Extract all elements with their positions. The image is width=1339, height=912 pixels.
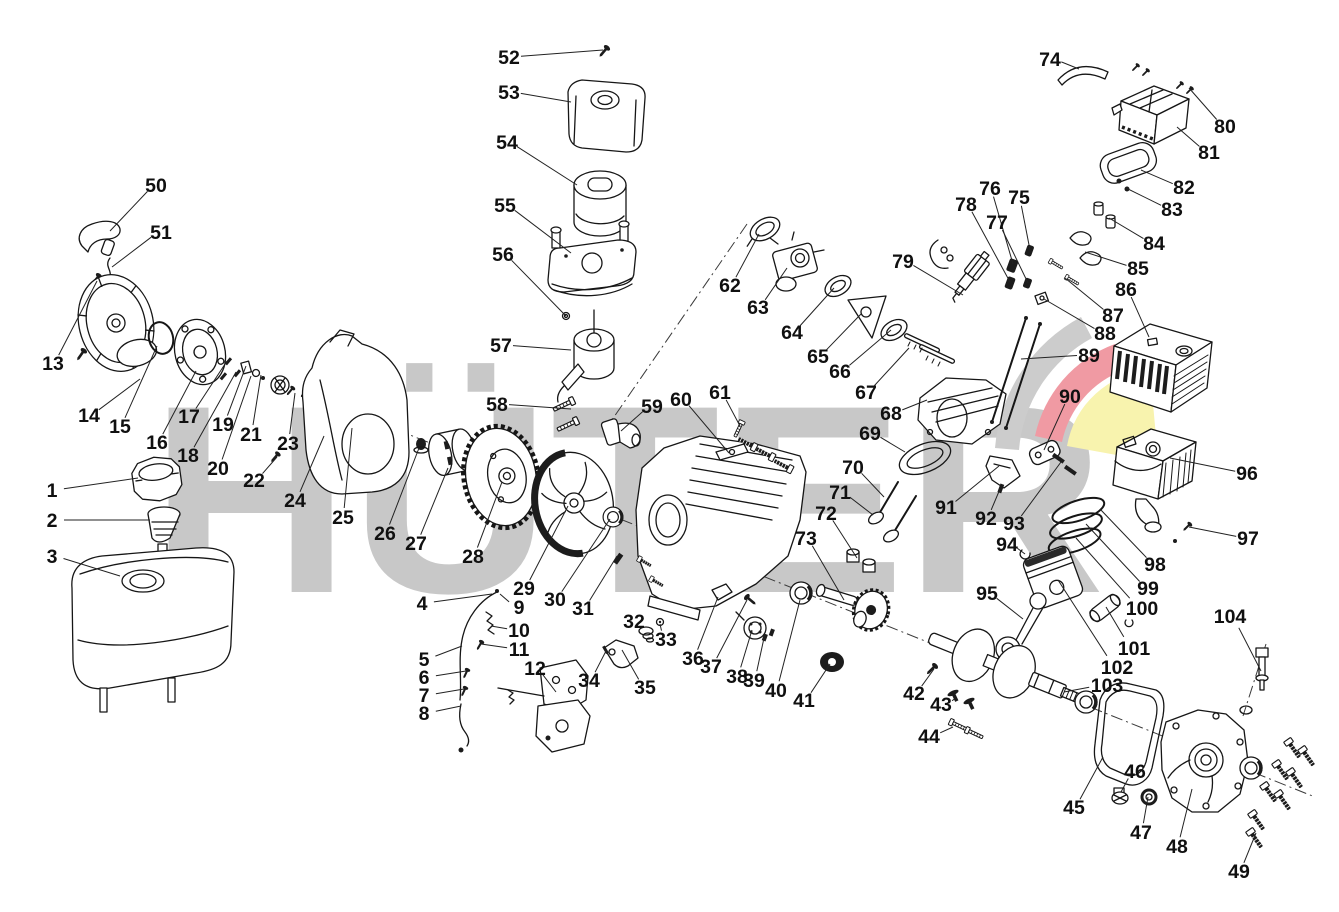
part-label-77: 77 xyxy=(986,212,1008,234)
leader-line-45 xyxy=(1080,757,1103,799)
bearing xyxy=(603,507,623,527)
part-label-9: 9 xyxy=(514,597,525,619)
part-label-98: 98 xyxy=(1144,554,1166,576)
part-label-26: 26 xyxy=(374,523,396,545)
leader-line-6 xyxy=(436,671,466,676)
part-label-3: 3 xyxy=(47,546,58,568)
pin-circlip xyxy=(1125,620,1133,627)
manifold-gasket xyxy=(877,315,910,345)
part-label-34: 34 xyxy=(578,670,600,692)
part-label-28: 28 xyxy=(462,546,484,568)
part-label-54: 54 xyxy=(496,132,518,154)
part-label-90: 90 xyxy=(1059,386,1081,408)
part-label-47: 47 xyxy=(1130,822,1152,844)
part-label-64: 64 xyxy=(781,322,803,344)
rocker-adjuster xyxy=(1035,292,1048,304)
part-label-97: 97 xyxy=(1237,528,1259,550)
leader-line-83 xyxy=(1126,188,1161,205)
part-label-45: 45 xyxy=(1063,797,1085,819)
part-label-76: 76 xyxy=(979,178,1001,200)
leader-line-62 xyxy=(736,234,759,277)
part-label-44: 44 xyxy=(918,726,940,748)
air-filter-element xyxy=(574,171,626,236)
leader-line-80 xyxy=(1189,88,1217,120)
leader-line-1 xyxy=(64,478,138,489)
valve-guides xyxy=(1094,202,1115,228)
part-label-2: 2 xyxy=(47,510,58,532)
part-label-96: 96 xyxy=(1236,463,1258,485)
leader-line-52 xyxy=(521,50,603,56)
part-label-23: 23 xyxy=(277,433,299,455)
leader-line-64 xyxy=(800,288,834,326)
part-label-49: 49 xyxy=(1228,861,1250,883)
part-label-84: 84 xyxy=(1143,233,1165,255)
part-label-12: 12 xyxy=(524,658,546,680)
part-label-80: 80 xyxy=(1214,116,1236,138)
part-label-57: 57 xyxy=(490,335,512,357)
flywheel-nut xyxy=(416,438,426,450)
part-label-14: 14 xyxy=(78,405,100,427)
leader-line-65 xyxy=(827,314,861,350)
oil-seal xyxy=(1142,790,1156,804)
part-label-20: 20 xyxy=(207,458,229,480)
leader-line-53 xyxy=(521,93,571,102)
rocker-cover xyxy=(1112,86,1189,144)
part-label-16: 16 xyxy=(146,432,168,454)
part-label-41: 41 xyxy=(793,690,815,712)
part-label-48: 48 xyxy=(1166,836,1188,858)
cover-gasket xyxy=(1097,139,1160,186)
leader-line-101 xyxy=(1106,607,1124,637)
part-label-100: 100 xyxy=(1126,598,1159,620)
exploded-view-canvas: HÜTER xyxy=(0,0,1339,912)
part-label-13: 13 xyxy=(42,353,64,375)
part-label-21: 21 xyxy=(240,424,262,446)
leader-line-8 xyxy=(436,706,461,711)
part-label-4: 4 xyxy=(417,593,428,615)
part-label-31: 31 xyxy=(572,598,594,620)
part-label-85: 85 xyxy=(1127,258,1149,280)
part-label-82: 82 xyxy=(1173,177,1195,199)
part-label-39: 39 xyxy=(743,670,765,692)
friction-plate xyxy=(271,376,289,394)
part-label-67: 67 xyxy=(855,382,877,404)
part-label-46: 46 xyxy=(1124,761,1146,783)
part-label-35: 35 xyxy=(634,677,656,699)
part-label-65: 65 xyxy=(807,346,829,368)
part-label-52: 52 xyxy=(498,47,520,69)
part-label-43: 43 xyxy=(930,694,952,716)
air-filter-cover xyxy=(568,80,645,152)
part-label-70: 70 xyxy=(842,457,864,479)
part-label-74: 74 xyxy=(1039,49,1061,71)
leader-line-55 xyxy=(515,210,571,253)
part-label-94: 94 xyxy=(996,534,1018,556)
leader-line-14 xyxy=(99,379,140,410)
part-label-63: 63 xyxy=(747,297,769,319)
part-label-24: 24 xyxy=(284,490,306,512)
part-label-56: 56 xyxy=(492,244,514,266)
part-label-72: 72 xyxy=(815,503,837,525)
part-label-1: 1 xyxy=(47,480,58,502)
part-label-19: 19 xyxy=(212,414,234,436)
air-cleaner-housing xyxy=(1113,429,1196,543)
choke-rod xyxy=(460,704,469,746)
leader-line-82 xyxy=(1141,170,1173,184)
leader-line-51 xyxy=(112,237,151,267)
part-label-78: 78 xyxy=(955,194,977,216)
part-label-55: 55 xyxy=(494,195,516,217)
leader-line-87 xyxy=(1065,278,1104,310)
oil-slinger xyxy=(820,652,844,672)
rocker-cover-cluster xyxy=(930,62,1195,304)
leader-line-50 xyxy=(110,191,148,231)
leader-line-44 xyxy=(940,727,953,733)
part-label-92: 92 xyxy=(975,508,997,530)
part-label-69: 69 xyxy=(859,423,881,445)
leader-line-81 xyxy=(1177,127,1200,147)
starter-grip xyxy=(79,221,120,252)
part-label-103: 103 xyxy=(1091,675,1124,697)
part-label-104: 104 xyxy=(1214,606,1247,628)
carburetor xyxy=(770,232,824,291)
part-label-17: 17 xyxy=(178,406,200,428)
parts-diagram-page: HÜTER xyxy=(0,0,1339,912)
part-label-86: 86 xyxy=(1115,279,1137,301)
leader-line-97 xyxy=(1189,527,1236,536)
insulator-plate xyxy=(848,296,886,338)
part-label-37: 37 xyxy=(700,656,722,678)
part-label-8: 8 xyxy=(419,703,430,725)
part-label-71: 71 xyxy=(829,482,851,504)
part-label-88: 88 xyxy=(1094,323,1116,345)
part-label-25: 25 xyxy=(332,507,354,529)
part-label-33: 33 xyxy=(655,629,677,651)
breather-tube xyxy=(1058,67,1108,85)
leader-line-49 xyxy=(1244,833,1256,863)
part-label-73: 73 xyxy=(795,528,817,550)
part-label-58: 58 xyxy=(486,394,508,416)
part-label-93: 93 xyxy=(1003,513,1025,535)
part-label-62: 62 xyxy=(719,275,741,297)
leader-line-74 xyxy=(1061,62,1079,69)
part-label-95: 95 xyxy=(976,583,998,605)
part-label-29: 29 xyxy=(513,578,535,600)
part-label-15: 15 xyxy=(109,416,131,438)
part-label-99: 99 xyxy=(1137,578,1159,600)
part-label-81: 81 xyxy=(1198,142,1220,164)
oil-drain-plug xyxy=(1112,788,1128,804)
leader-line-41 xyxy=(811,664,830,693)
leader-line-54 xyxy=(517,147,577,185)
part-label-89: 89 xyxy=(1078,345,1100,367)
part-label-83: 83 xyxy=(1161,199,1183,221)
fuel-tank xyxy=(72,548,234,712)
part-label-30: 30 xyxy=(544,589,566,611)
part-label-59: 59 xyxy=(641,396,663,418)
part-label-61: 61 xyxy=(709,382,731,404)
crankcase-cover xyxy=(1161,710,1248,812)
leader-line-79 xyxy=(913,265,963,295)
part-label-60: 60 xyxy=(670,389,692,411)
part-label-51: 51 xyxy=(150,222,172,244)
part-label-68: 68 xyxy=(880,403,902,425)
leader-line-75 xyxy=(1021,206,1030,250)
part-label-32: 32 xyxy=(623,611,645,633)
part-label-91: 91 xyxy=(935,497,957,519)
part-label-75: 75 xyxy=(1008,187,1030,209)
part-label-40: 40 xyxy=(765,680,787,702)
plug-terminal-wire xyxy=(930,240,948,268)
part-label-50: 50 xyxy=(145,175,167,197)
part-label-42: 42 xyxy=(903,683,925,705)
part-label-66: 66 xyxy=(829,361,851,383)
part-label-79: 79 xyxy=(892,251,914,273)
rocker-arms xyxy=(1070,232,1101,265)
part-label-22: 22 xyxy=(243,470,265,492)
part-label-53: 53 xyxy=(498,82,520,104)
part-label-27: 27 xyxy=(405,533,427,555)
part-label-18: 18 xyxy=(177,445,199,467)
